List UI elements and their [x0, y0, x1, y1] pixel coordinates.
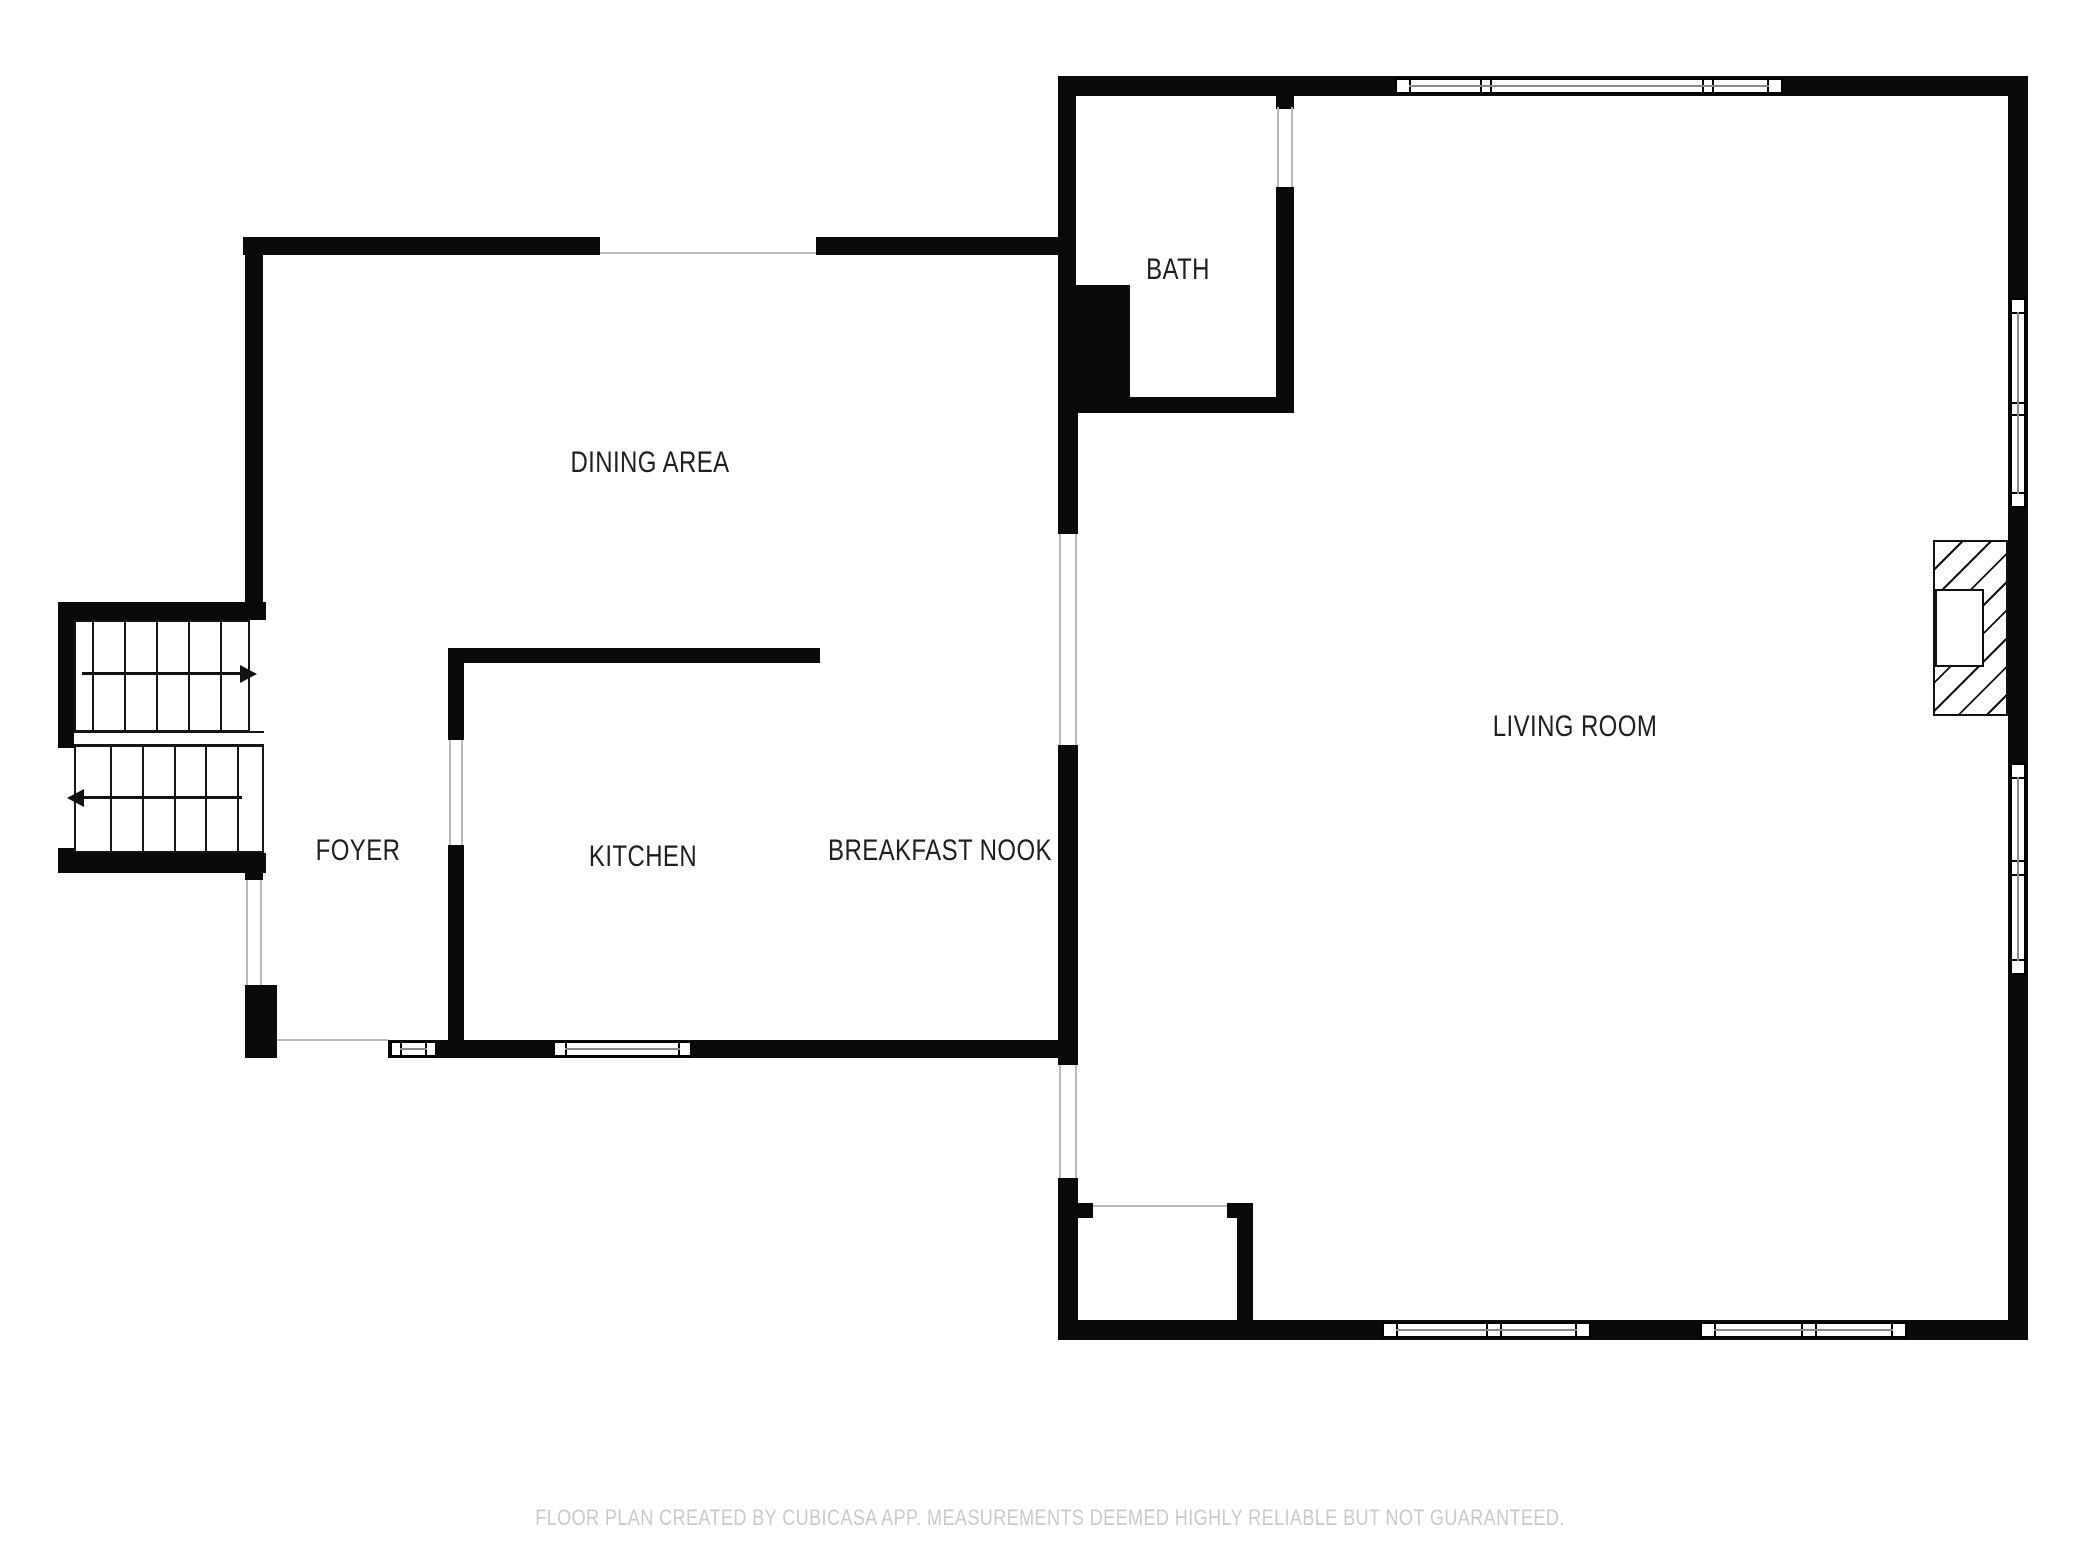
wall-foyer-left-upper [245, 853, 263, 880]
stairs-upper-flight [74, 620, 250, 732]
opening-line-closet [1093, 1205, 1227, 1207]
stairs-down-direction-line [84, 796, 242, 799]
wall-middle-upper [1058, 413, 1078, 534]
opening-line-front-door [246, 880, 248, 985]
opening-line-kitchen-door [461, 740, 463, 845]
wall-kitchen-top [448, 648, 820, 663]
window-kitchen-bottom [553, 1041, 692, 1057]
bath-solid-block [1058, 285, 1130, 413]
opening-line-living-door [1059, 1065, 1061, 1178]
footer-text: FLOOR PLAN CREATED BY CUBICASA APP. MEAS… [535, 1505, 1564, 1531]
room-label-living-room: LIVING ROOM [1493, 710, 1657, 744]
stairs-arrow-left-icon [67, 789, 84, 807]
opening-line-nook-passage [1059, 534, 1061, 745]
fireplace-firebox [1935, 589, 1984, 667]
window-living-bottom-left [1382, 1322, 1591, 1338]
wall-right [2008, 76, 2028, 1340]
window-living-right-lower [2010, 763, 2026, 975]
window-foyer-bottom [390, 1041, 437, 1057]
wall-middle-center [1058, 745, 1078, 1065]
stairs-up-direction-line [82, 672, 240, 675]
wall-closet-stub-left [1078, 1203, 1093, 1218]
wall-stairs-top [58, 602, 266, 620]
opening-line-dining-top [600, 252, 816, 254]
opening-line-bath-door [1277, 107, 1279, 187]
wall-kitchen-left-upper [448, 648, 464, 740]
room-label-breakfast-nook: BREAKFAST NOOK [828, 834, 1052, 868]
room-label-foyer: FOYER [316, 834, 401, 868]
window-living-top [1395, 78, 1783, 94]
wall-foyer-left-lower [245, 985, 277, 1058]
room-label-bath: BATH [1146, 253, 1210, 287]
window-living-bottom-right [1700, 1322, 1907, 1338]
wall-middle-lower [1058, 1178, 1078, 1320]
stairs-arrow-right-icon [240, 665, 257, 683]
wall-kitchen-left-lower [448, 845, 464, 1058]
stairs-landing [74, 731, 264, 746]
wall-stairs-bottom [58, 853, 266, 873]
wall-stairs-left-upper [58, 602, 74, 748]
opening-line-bath-door [1291, 107, 1293, 187]
opening-line-foyer-bottom [277, 1039, 388, 1041]
wall-bath-bottom [1130, 397, 1294, 413]
wall-dining-top-right [816, 237, 1058, 255]
stairs-lower-flight [74, 745, 264, 853]
wall-left-upper [245, 237, 263, 620]
floor-plan: DINING AREA BATH LIVING ROOM FOYER KITCH… [0, 0, 2080, 1560]
wall-closet-right [1237, 1203, 1253, 1320]
window-living-right-upper [2010, 298, 2026, 508]
opening-line-living-door [1075, 1065, 1077, 1178]
wall-dining-top-left [243, 237, 600, 255]
wall-bath-right-lower [1276, 187, 1294, 413]
wall-kitchen-bottom [388, 1040, 1078, 1058]
room-label-kitchen: KITCHEN [589, 840, 697, 874]
opening-line-nook-passage [1075, 534, 1077, 745]
opening-line-kitchen-door [449, 740, 451, 845]
opening-line-front-door [260, 880, 262, 985]
room-label-dining-area: DINING AREA [570, 446, 729, 480]
